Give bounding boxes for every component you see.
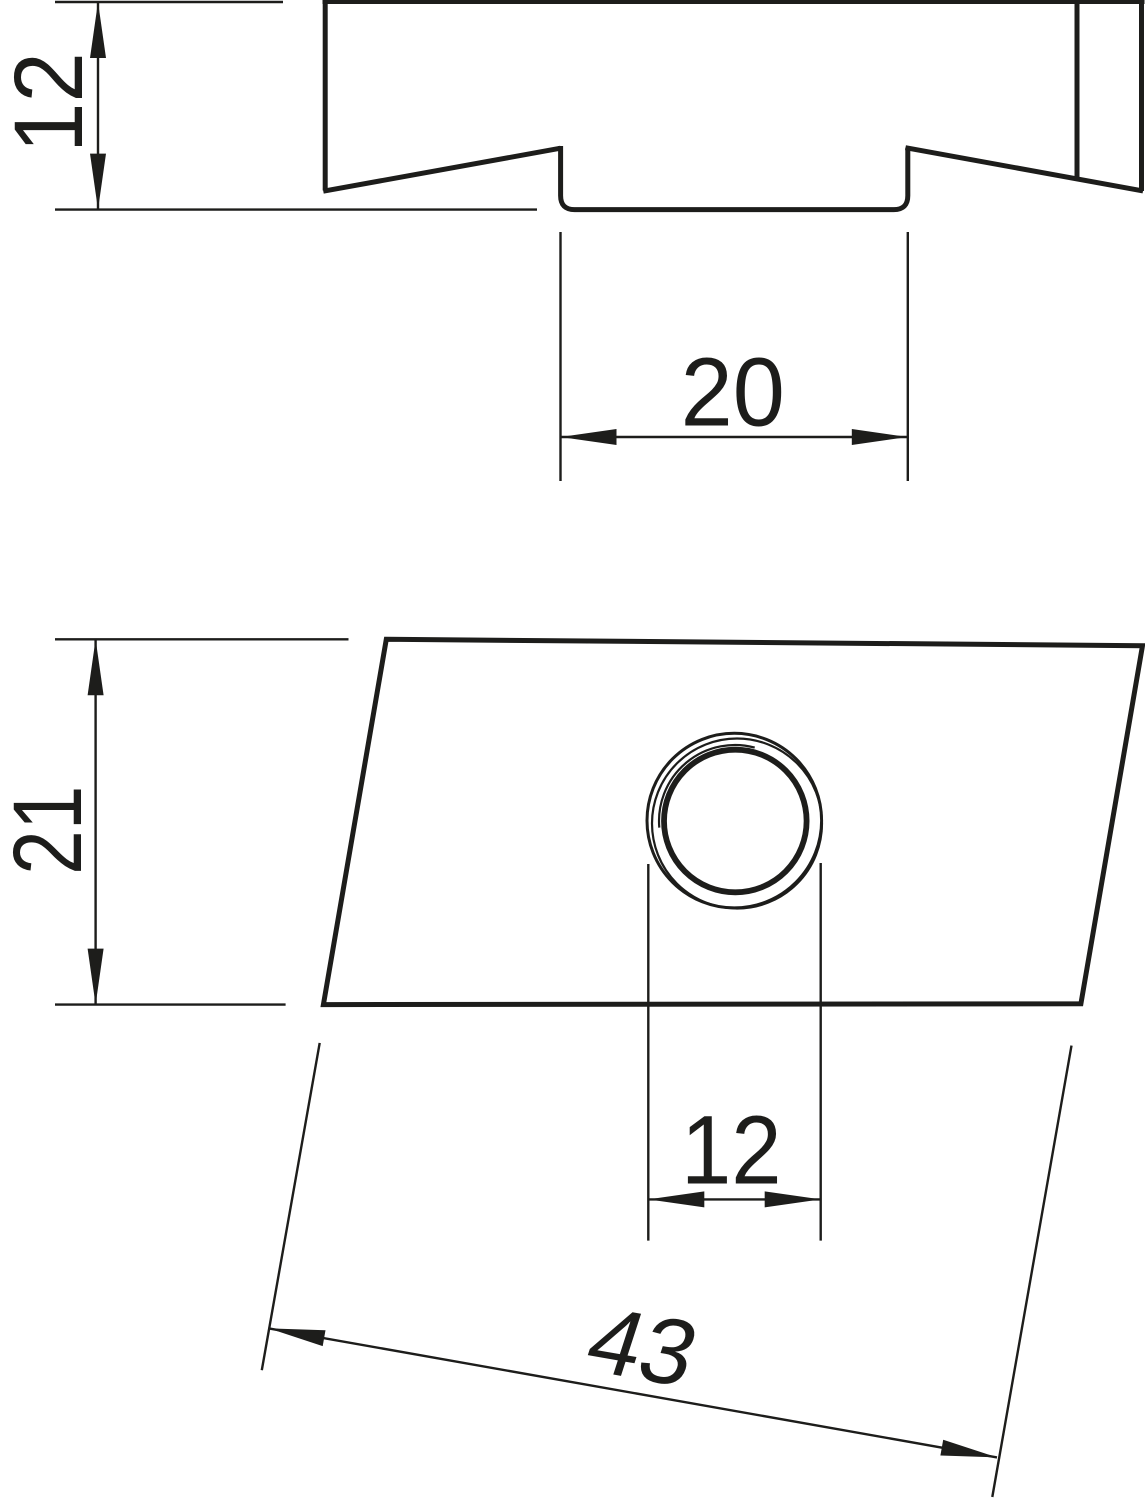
svg-text:20: 20 xyxy=(681,339,785,447)
svg-text:12: 12 xyxy=(0,52,103,153)
svg-text:12: 12 xyxy=(681,1095,782,1204)
svg-text:21: 21 xyxy=(0,785,102,874)
svg-text:43: 43 xyxy=(575,1288,711,1407)
